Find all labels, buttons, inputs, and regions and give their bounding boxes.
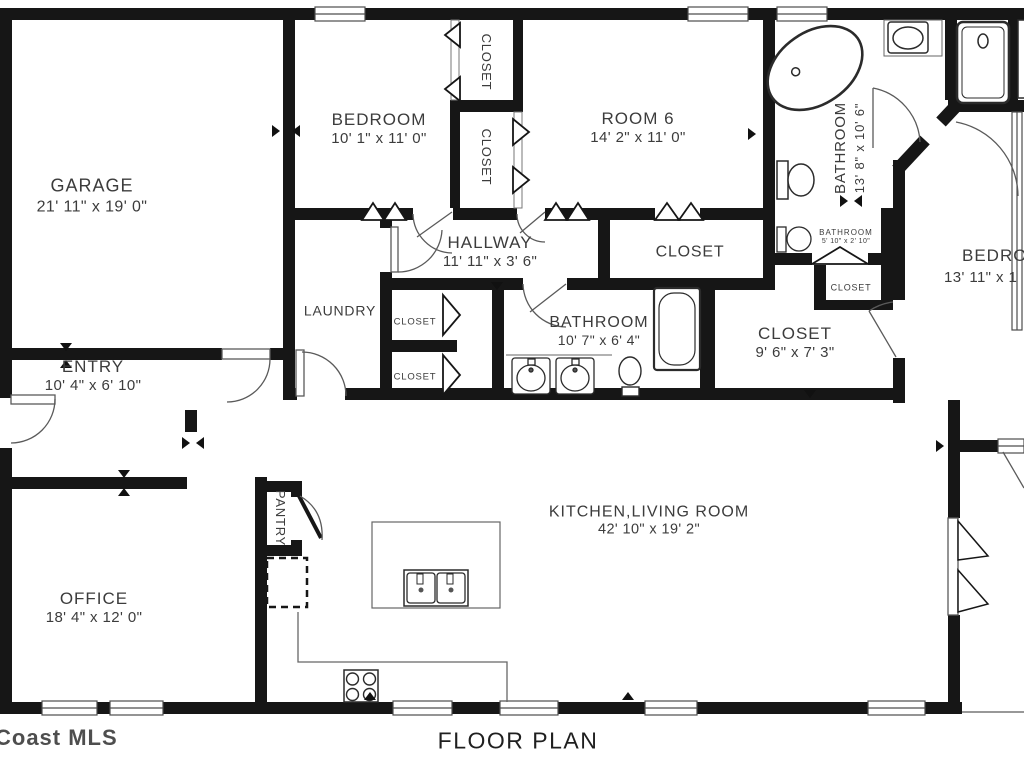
floor-plan-drawing [0,0,1024,768]
room-label-closet-hall-upper: CLOSET [394,316,437,327]
room-label-closet-hall-lower: CLOSET [394,371,437,382]
toilet-icon-bath2 [619,357,641,396]
door-arc-laundry-hall [391,227,442,272]
window [777,7,827,21]
room-label-closet-room6: CLOSET [656,242,725,261]
window [645,701,697,715]
window [868,701,925,715]
window [315,7,365,21]
room-label-bathroom-master-dims: 13' 8" x 10' 6" [852,103,868,194]
room-label-bathroom-small: BATHROOM 5' 10" x 2' 10" [819,228,873,246]
watermark: Coast MLS [0,725,118,751]
room-label-closet-walkin: CLOSET 9' 6" x 7' 3" [755,324,834,362]
room-label-room6: ROOM 6 14' 2" x 11' 0" [590,109,686,147]
room-label-closet-top: CLOSET [478,34,494,91]
window [110,701,163,715]
door-arc-bedroom2-closet [869,302,896,357]
room-label-entry: ENTRY 10' 4" x 6' 10" [45,357,142,395]
sink-icon-master [884,20,942,56]
room-label-kitchen-living: KITCHEN,LIVING ROOM 42' 10" x 19' 2" [549,503,749,540]
bifold-chevron [812,247,868,264]
room-label-bedroom2-name: BEDROOM [962,246,1024,266]
door-pantry [299,496,322,540]
bifold-chevron [655,203,679,220]
room-label-bathroom-master-name: BATHROOM [832,102,850,194]
page-title: FLOOR PLAN [438,728,599,755]
window [42,701,97,715]
window [1012,112,1022,330]
room-label-hallway: HALLWAY 11' 11" x 3' 6" [443,233,537,271]
room-label-bathroom2: BATHROOM 10' 7" x 6' 4" [549,313,648,349]
shower-icon [957,22,1009,103]
window [688,7,748,21]
vanity-icon-corner [1018,20,1024,98]
door-arc-garage [222,349,270,402]
room-label-bedroom1: BEDROOM 10' 1" x 11' 0" [331,110,427,148]
refrigerator-dashed-box [267,558,307,607]
door-arc-laundry [296,350,346,396]
toilet-icon-small-bath [777,227,811,252]
bifold-chevron [443,295,460,335]
window [393,701,452,715]
room-label-garage: GARAGE 21' 11" x 19' 0" [37,176,148,217]
room-label-laundry: LAUNDRY [304,303,376,320]
island-sink-icon [404,570,468,606]
room-label-closet-mid: CLOSET [478,129,494,186]
room-label-closet-small: CLOSET [831,283,872,294]
floor-plan-page: GARAGE 21' 11" x 19' 0" BEDROOM 10' 1" x… [0,0,1024,768]
room-label-office: OFFICE 18' 4" x 12' 0" [46,589,143,627]
bifold-chevron [679,203,703,220]
counter-line [298,612,507,702]
door-arc-front [11,395,55,443]
patio-door [948,518,988,615]
bathtub-icon-bath2 [654,288,700,370]
window [998,439,1024,453]
window [500,701,558,715]
room-label-pantry: PANTRY [272,490,288,546]
door-arc-master-bath [873,88,920,148]
door-leaf-bedroom2-corner [1003,452,1024,488]
room-label-bedroom2-dims: 13' 11" x 1 [944,269,1017,287]
toilet-icon-master [777,161,814,199]
door-arc-bedroom2 [956,122,1018,196]
